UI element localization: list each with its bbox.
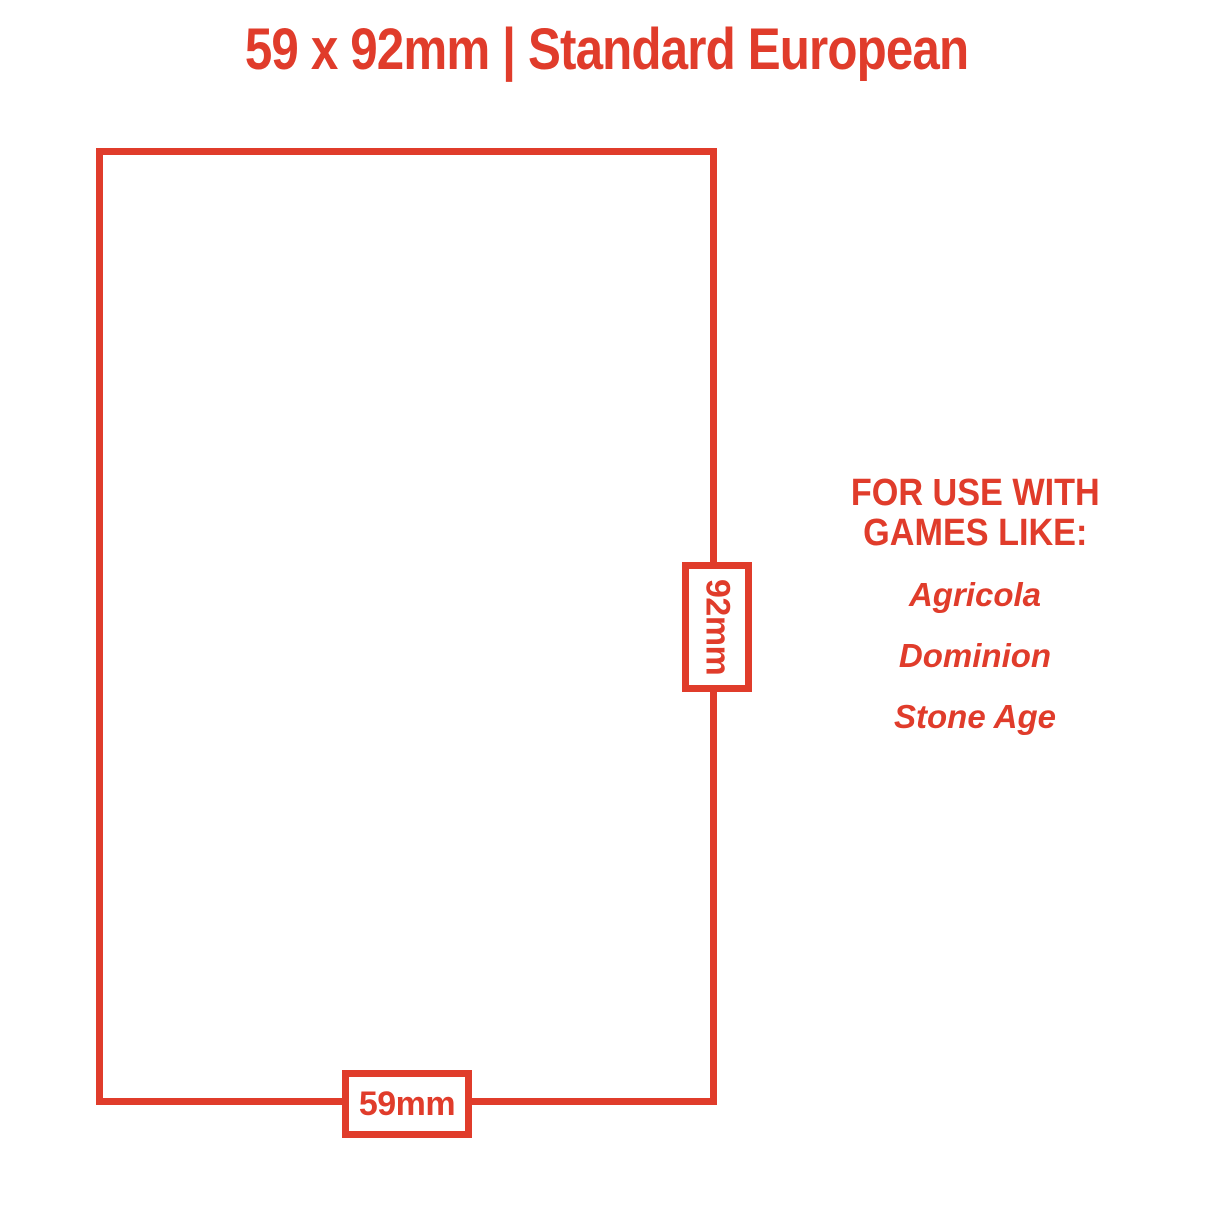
page-title: 59 x 92mm | Standard European [0,16,1214,83]
card-size-diagram: 59 x 92mm | Standard European 92mm 59mm … [0,0,1214,1214]
card-outline [96,148,717,1105]
games-info-panel: FOR USE WITH GAMES LIKE: Agricola Domini… [790,474,1160,736]
width-dimension-label: 59mm [342,1070,472,1138]
page-title-text: 59 x 92mm | Standard European [245,16,968,83]
height-dimension-label: 92mm [682,562,752,692]
width-dimension-value: 59mm [359,1085,455,1124]
info-heading-line2: GAMES LIKE: [863,512,1087,554]
game-name-dominion: Dominion [790,637,1160,675]
info-heading: FOR USE WITH GAMES LIKE: [790,474,1160,553]
info-heading-text: FOR USE WITH GAMES LIKE: [851,474,1100,553]
game-name-agricola: Agricola [790,576,1160,614]
game-name-stone-age: Stone Age [790,698,1160,736]
info-heading-line1: FOR USE WITH [851,472,1100,514]
height-dimension-value: 92mm [698,579,737,675]
